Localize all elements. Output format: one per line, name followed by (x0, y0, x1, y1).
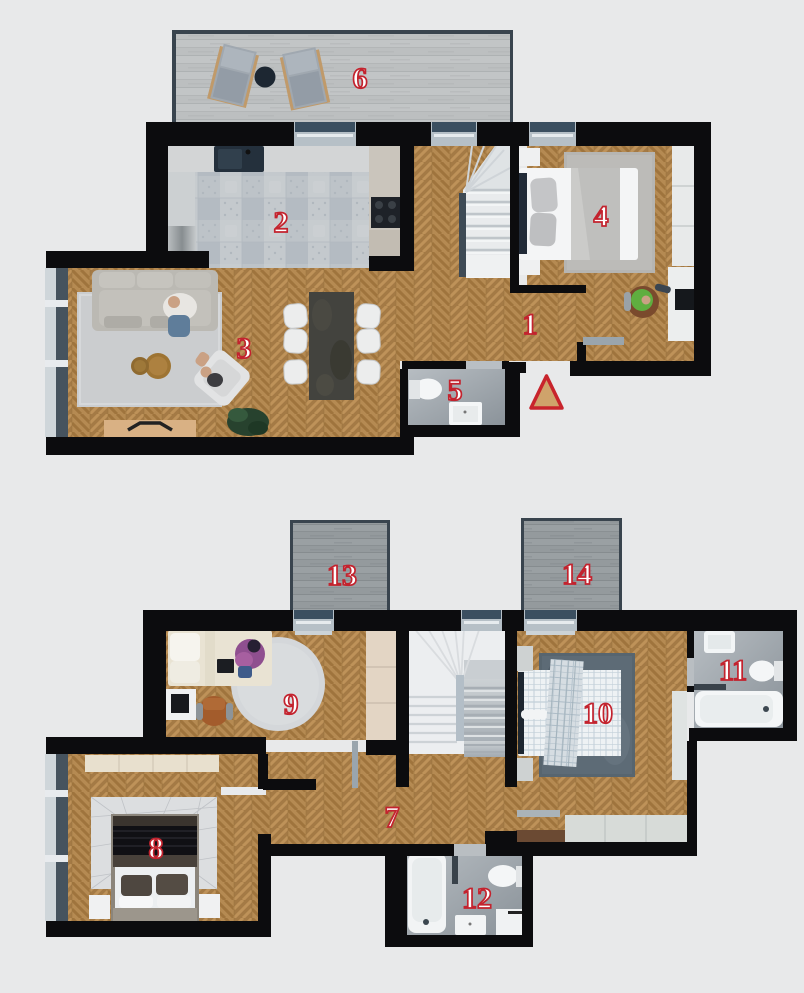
svg-text:9: 9 (284, 688, 299, 721)
svg-text:7: 7 (385, 801, 400, 834)
svg-text:12: 12 (462, 882, 492, 915)
svg-text:4: 4 (594, 200, 609, 233)
svg-text:6: 6 (353, 62, 368, 95)
svg-text:3: 3 (237, 332, 252, 365)
svg-text:13: 13 (327, 559, 357, 592)
svg-text:1: 1 (523, 308, 538, 341)
svg-text:2: 2 (274, 206, 289, 239)
svg-text:10: 10 (583, 697, 613, 730)
svg-text:14: 14 (562, 558, 592, 591)
svg-text:5: 5 (448, 374, 463, 407)
svg-text:8: 8 (149, 832, 164, 865)
svg-text:11: 11 (719, 654, 747, 687)
